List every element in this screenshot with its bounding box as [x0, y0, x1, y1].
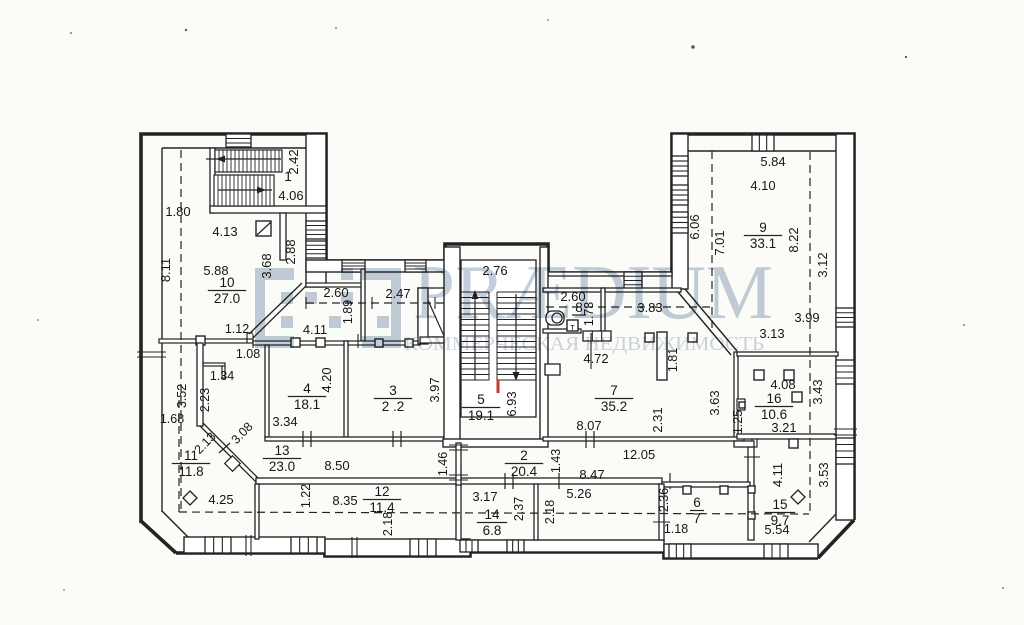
svg-text:8.07: 8.07	[576, 418, 601, 433]
svg-text:2.88: 2.88	[283, 239, 298, 264]
svg-text:16: 16	[766, 391, 781, 406]
svg-text:PRÆDIUM: PRÆDIUM	[413, 249, 773, 335]
svg-text:4.25: 4.25	[208, 492, 233, 507]
svg-text:12.05: 12.05	[623, 447, 656, 462]
svg-text:7: 7	[610, 383, 618, 398]
svg-text:3.21: 3.21	[771, 420, 796, 435]
svg-text:9: 9	[759, 220, 767, 235]
svg-text:35.2: 35.2	[601, 399, 627, 414]
svg-text:1.18: 1.18	[664, 522, 688, 536]
svg-text:8.11: 8.11	[158, 258, 173, 282]
svg-text:5: 5	[477, 392, 485, 407]
svg-text:3.63: 3.63	[707, 390, 722, 415]
svg-text:8.50: 8.50	[324, 458, 349, 473]
svg-text:3.99: 3.99	[794, 310, 819, 325]
svg-text:1.68: 1.68	[160, 412, 184, 426]
svg-text:13: 13	[274, 443, 289, 458]
svg-text:4.08: 4.08	[770, 377, 795, 392]
svg-text:2.42: 2.42	[286, 149, 301, 174]
svg-text:1.46: 1.46	[436, 452, 450, 476]
svg-text:2.37: 2.37	[512, 497, 526, 521]
svg-text:1.25: 1.25	[731, 410, 745, 434]
svg-text:3.43: 3.43	[810, 379, 825, 404]
svg-text:3.34: 3.34	[272, 414, 297, 429]
svg-text:2.31: 2.31	[650, 407, 665, 432]
svg-text:12: 12	[374, 484, 389, 499]
svg-text:1.43: 1.43	[549, 449, 563, 473]
svg-text:6.06: 6.06	[687, 214, 702, 239]
svg-text:5.84: 5.84	[760, 154, 785, 169]
svg-text:8.47: 8.47	[579, 467, 604, 482]
svg-text:6.8: 6.8	[483, 523, 502, 538]
svg-text:10: 10	[219, 275, 234, 290]
svg-text:2.18: 2.18	[543, 500, 557, 524]
svg-text:3.52: 3.52	[175, 384, 189, 408]
svg-text:3: 3	[389, 383, 397, 398]
svg-text:7: 7	[693, 511, 701, 526]
svg-text:4.11: 4.11	[303, 322, 327, 337]
svg-text:23.0: 23.0	[269, 459, 295, 474]
svg-text:18.1: 18.1	[294, 397, 320, 412]
svg-text:19.1: 19.1	[468, 408, 494, 423]
svg-text:5.54: 5.54	[764, 522, 789, 537]
svg-text:4.11: 4.11	[770, 463, 785, 487]
svg-text:3.97: 3.97	[427, 377, 442, 402]
svg-text:3.53: 3.53	[816, 462, 831, 487]
svg-text:1.34: 1.34	[210, 369, 234, 383]
svg-text:6.93: 6.93	[504, 391, 519, 416]
svg-text:11.8: 11.8	[178, 464, 203, 479]
svg-text:2.18: 2.18	[381, 512, 395, 536]
svg-text:15: 15	[772, 497, 787, 512]
svg-text:3.17: 3.17	[472, 489, 497, 504]
svg-text:2.23: 2.23	[198, 388, 212, 412]
svg-text:27.0: 27.0	[214, 291, 240, 306]
svg-text:20.4: 20.4	[511, 464, 538, 479]
svg-text:4.06: 4.06	[278, 188, 303, 203]
svg-text:4.13: 4.13	[212, 224, 237, 239]
svg-text:1.80: 1.80	[165, 204, 190, 219]
svg-text:3.12: 3.12	[815, 252, 830, 277]
svg-text:2: 2	[520, 448, 528, 463]
svg-text:4.10: 4.10	[750, 178, 775, 193]
svg-text:1.08: 1.08	[236, 347, 260, 361]
svg-text:14: 14	[484, 507, 500, 522]
svg-text:1.22: 1.22	[299, 484, 313, 508]
svg-text:5.26: 5.26	[566, 486, 591, 501]
svg-text:2.36: 2.36	[657, 488, 671, 512]
svg-text:6: 6	[693, 495, 701, 510]
svg-text:11: 11	[184, 448, 198, 463]
svg-text:4.20: 4.20	[319, 367, 334, 392]
svg-text:КОММЕРЧЕСКАЯ НЕДВИЖИМОСТЬ: КОММЕРЧЕСКАЯ НЕДВИЖИМОСТЬ	[404, 333, 764, 355]
svg-text:1.12: 1.12	[225, 322, 249, 336]
svg-text:8.35: 8.35	[332, 493, 357, 508]
svg-text:2 .2: 2 .2	[382, 399, 405, 414]
svg-text:4: 4	[303, 381, 311, 396]
svg-text:8.22: 8.22	[786, 227, 801, 252]
